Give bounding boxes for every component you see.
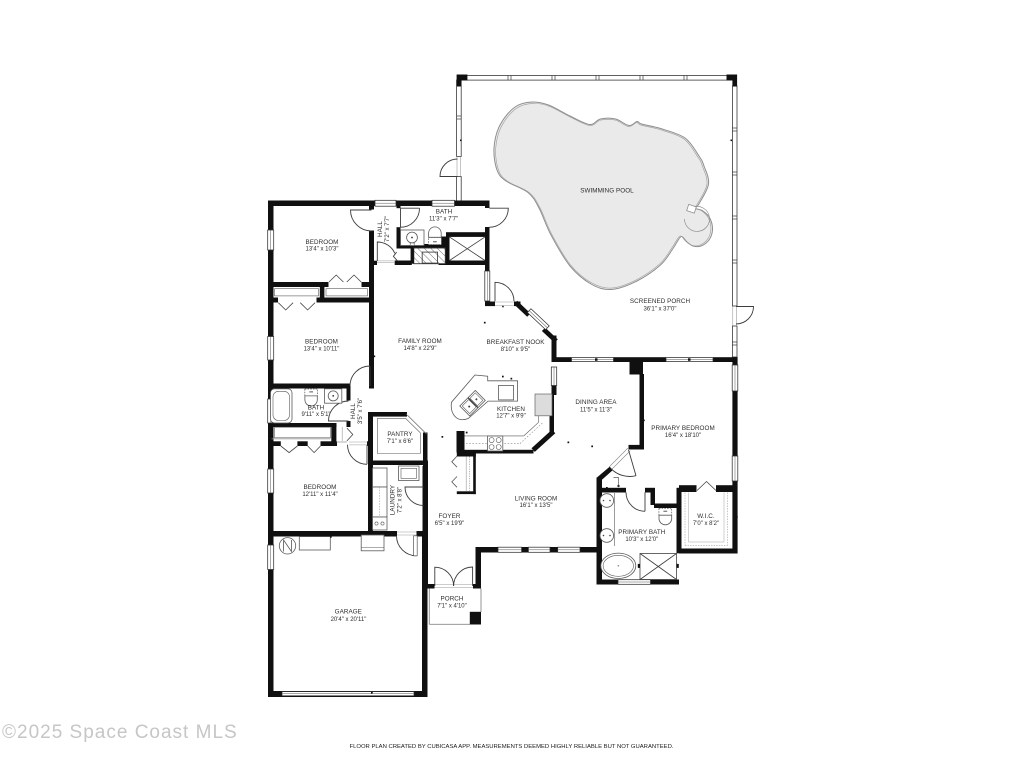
svg-text:FOYER: FOYER	[439, 513, 461, 520]
svg-text:11'5" x 11'3": 11'5" x 11'3"	[580, 408, 612, 414]
svg-text:9'11" x 5'1": 9'11" x 5'1"	[301, 412, 330, 418]
svg-text:SWIMMING POOL: SWIMMING POOL	[580, 188, 634, 195]
svg-text:16'4" x 18'10": 16'4" x 18'10"	[665, 433, 701, 439]
svg-text:BEDROOM: BEDROOM	[305, 339, 338, 346]
svg-text:BREAKFAST NOOK: BREAKFAST NOOK	[487, 339, 546, 346]
svg-text:PORCH: PORCH	[441, 596, 464, 603]
svg-text:BATH: BATH	[436, 209, 453, 216]
svg-text:LIVING ROOM: LIVING ROOM	[515, 496, 558, 503]
svg-text:BATH: BATH	[308, 405, 325, 412]
svg-text:13'4" x 10'11": 13'4" x 10'11"	[304, 346, 340, 352]
svg-text:7'0" x 8'2": 7'0" x 8'2"	[693, 521, 719, 527]
svg-text:PRIMARY BEDROOM: PRIMARY BEDROOM	[651, 425, 715, 432]
svg-text:7'2" x 8'8": 7'2" x 8'8"	[397, 487, 403, 513]
svg-text:3'5" x 7'6": 3'5" x 7'6"	[358, 398, 364, 424]
svg-text:DINING AREA: DINING AREA	[575, 399, 617, 406]
svg-text:7'2" x 7'7": 7'2" x 7'7"	[385, 216, 391, 242]
svg-text:PRIMARY BATH: PRIMARY BATH	[618, 529, 666, 536]
svg-text:36'1" x 37'0": 36'1" x 37'0"	[644, 306, 677, 312]
svg-text:13'4" x 10'3": 13'4" x 10'3"	[306, 247, 339, 253]
svg-text:8'10" x 9'5": 8'10" x 9'5"	[501, 347, 531, 353]
svg-text:12'7" x 9'9": 12'7" x 9'9"	[496, 414, 526, 420]
svg-text:7'1" x 4'10": 7'1" x 4'10"	[437, 604, 467, 610]
svg-text:12'11" x 11'4": 12'11" x 11'4"	[302, 492, 337, 498]
svg-text:11'3" x 7'7": 11'3" x 7'7"	[429, 217, 458, 223]
svg-text:20'4" x 20'11": 20'4" x 20'11"	[331, 617, 367, 623]
svg-text:7'1" x 6'6": 7'1" x 6'6"	[387, 439, 413, 445]
svg-text:BEDROOM: BEDROOM	[306, 239, 339, 246]
svg-text:W.I.C.: W.I.C.	[697, 513, 715, 520]
svg-text:10'3" x 12'0": 10'3" x 12'0"	[625, 537, 658, 543]
svg-text:FAMILY ROOM: FAMILY ROOM	[398, 338, 442, 345]
svg-text:GARAGE: GARAGE	[335, 609, 362, 616]
svg-text:LAUNDRY: LAUNDRY	[390, 484, 397, 515]
svg-text:6'5" x 19'9": 6'5" x 19'9"	[435, 521, 465, 527]
svg-text:SCREENED PORCH: SCREENED PORCH	[630, 298, 691, 305]
svg-text:BEDROOM: BEDROOM	[304, 484, 337, 491]
svg-text:14'8" x 22'9": 14'8" x 22'9"	[404, 346, 437, 352]
svg-text:HALL: HALL	[350, 403, 357, 419]
svg-text:PANTRY: PANTRY	[387, 431, 413, 438]
svg-text:HALL: HALL	[377, 221, 384, 237]
svg-text:16'1" x 13'5": 16'1" x 13'5"	[520, 503, 553, 509]
svg-text:KITCHEN: KITCHEN	[497, 406, 525, 413]
